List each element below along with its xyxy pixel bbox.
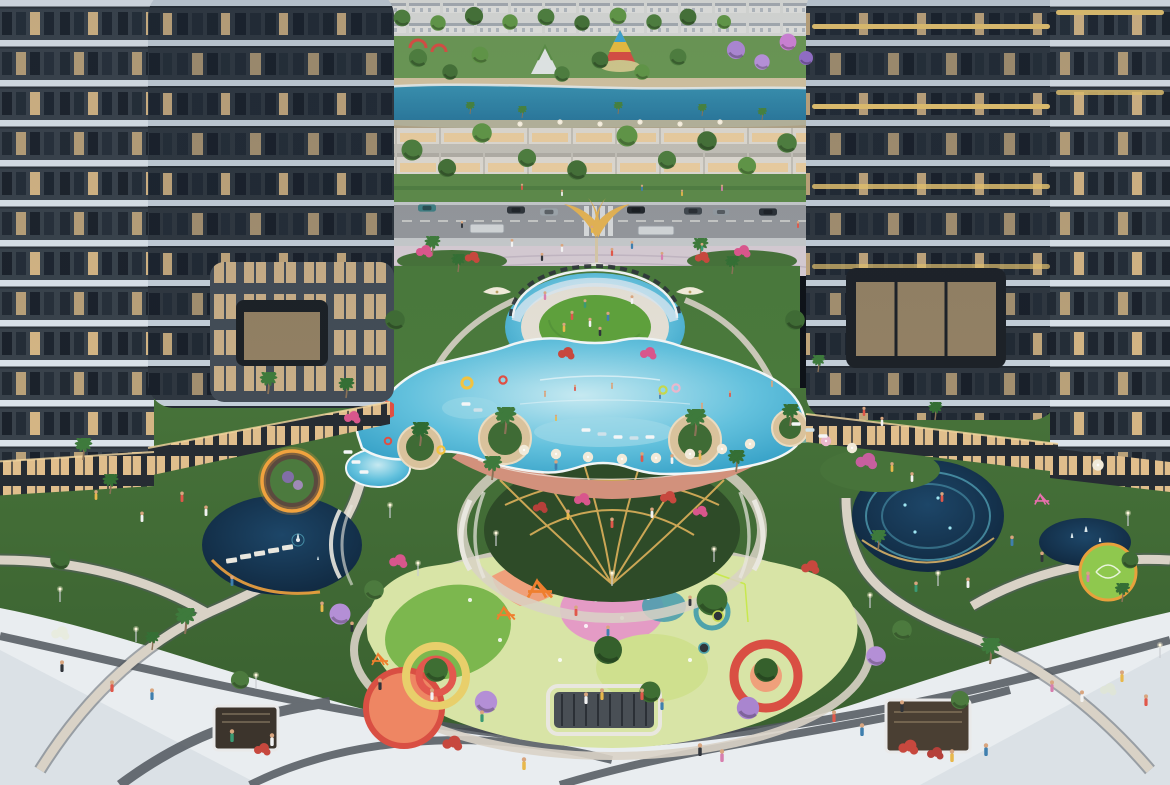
person xyxy=(650,508,654,518)
tree xyxy=(330,604,351,625)
trampoline xyxy=(713,611,723,621)
person xyxy=(320,602,324,612)
tree xyxy=(754,54,769,69)
person xyxy=(611,383,613,389)
person xyxy=(659,393,661,399)
tree xyxy=(592,52,609,69)
pool-lounger xyxy=(352,460,361,464)
aerial-render-residential-complex xyxy=(0,0,1170,785)
tree xyxy=(394,10,411,27)
tree xyxy=(697,585,728,616)
person xyxy=(688,596,692,606)
tree xyxy=(658,151,676,169)
person xyxy=(544,391,546,397)
tree xyxy=(567,160,587,180)
person xyxy=(600,688,604,700)
tree xyxy=(554,66,569,81)
person xyxy=(1086,572,1090,582)
umbrella xyxy=(517,121,522,126)
tree xyxy=(951,691,969,709)
person xyxy=(110,680,114,692)
tree xyxy=(646,14,661,29)
pool-lounger xyxy=(462,402,471,406)
person xyxy=(461,221,463,228)
umbrella xyxy=(583,452,593,462)
person xyxy=(890,462,893,472)
car xyxy=(540,208,558,215)
umbrella xyxy=(717,119,722,124)
dusk-overlay xyxy=(0,0,1170,785)
tree xyxy=(50,550,70,570)
person xyxy=(570,311,573,320)
pool-lounger xyxy=(646,435,655,439)
person xyxy=(554,460,557,470)
umbrella xyxy=(597,121,602,126)
person xyxy=(521,184,523,190)
umbrella xyxy=(717,444,727,454)
person xyxy=(561,244,564,252)
person xyxy=(631,241,634,249)
person xyxy=(631,295,634,304)
person xyxy=(511,239,514,247)
person xyxy=(60,660,64,672)
person xyxy=(180,492,184,502)
person xyxy=(860,723,864,736)
person xyxy=(880,417,883,426)
person xyxy=(900,700,904,712)
tree xyxy=(409,49,427,67)
person xyxy=(721,185,723,191)
car xyxy=(759,208,777,215)
person xyxy=(606,626,610,636)
tree xyxy=(785,310,805,330)
tree xyxy=(472,47,489,64)
tree xyxy=(617,126,638,147)
person xyxy=(701,243,704,251)
pool-lounger xyxy=(598,432,607,436)
person xyxy=(378,678,382,690)
tree xyxy=(738,157,756,175)
car xyxy=(507,206,525,213)
tree xyxy=(475,691,497,713)
pool-lounger xyxy=(360,470,369,474)
person xyxy=(561,190,563,196)
render-canvas xyxy=(0,0,1170,785)
person xyxy=(698,743,702,756)
tree xyxy=(610,8,627,25)
pool-lounger xyxy=(630,436,639,440)
tree xyxy=(472,123,492,143)
person xyxy=(640,688,644,700)
tree xyxy=(727,41,745,59)
person xyxy=(950,749,954,762)
tree xyxy=(538,9,555,26)
person xyxy=(574,606,578,616)
person xyxy=(584,299,587,308)
tree xyxy=(717,15,731,29)
umbrella xyxy=(847,443,857,453)
tree xyxy=(680,9,697,26)
person xyxy=(681,190,683,196)
person xyxy=(562,323,565,332)
umbrella xyxy=(617,454,627,464)
tree xyxy=(430,15,445,30)
person xyxy=(610,518,614,528)
person xyxy=(591,225,594,233)
person xyxy=(230,729,234,742)
person xyxy=(940,492,943,502)
person xyxy=(640,452,643,462)
tree xyxy=(1122,552,1139,569)
person xyxy=(480,710,484,722)
tree xyxy=(465,7,483,25)
umbrella xyxy=(677,121,682,126)
person xyxy=(729,391,731,397)
trampoline xyxy=(699,643,709,653)
tree xyxy=(799,51,813,65)
person xyxy=(606,312,609,321)
tree xyxy=(892,620,912,640)
person xyxy=(566,510,570,520)
person xyxy=(910,472,913,482)
person xyxy=(541,253,544,261)
person xyxy=(701,403,703,409)
person xyxy=(544,291,547,300)
person xyxy=(797,221,799,228)
person xyxy=(230,576,234,586)
tree xyxy=(385,310,405,330)
person xyxy=(204,506,208,516)
tree xyxy=(231,671,249,689)
pool-lounger xyxy=(792,422,801,426)
umbrella xyxy=(745,439,755,449)
person xyxy=(574,385,576,391)
person xyxy=(1144,694,1148,706)
tree xyxy=(670,49,687,66)
person xyxy=(771,381,773,387)
person xyxy=(1080,690,1084,702)
pool-lounger xyxy=(806,428,815,432)
person xyxy=(522,757,526,770)
umbrella xyxy=(519,445,529,455)
person xyxy=(641,185,643,191)
tree xyxy=(438,159,456,177)
tree xyxy=(634,64,649,79)
person xyxy=(661,252,664,260)
person xyxy=(588,318,591,327)
person xyxy=(1010,536,1014,546)
person xyxy=(1120,670,1124,682)
tree xyxy=(754,658,778,682)
person xyxy=(350,622,354,632)
person xyxy=(94,490,97,500)
umbrella xyxy=(1092,459,1103,470)
car xyxy=(684,207,702,214)
person xyxy=(598,327,601,336)
tree xyxy=(737,697,759,719)
person xyxy=(611,248,614,256)
umbrella xyxy=(557,119,562,124)
umbrella xyxy=(551,449,561,459)
person xyxy=(584,692,588,704)
person xyxy=(150,688,154,700)
person xyxy=(1040,552,1044,562)
tree xyxy=(780,34,797,51)
car xyxy=(627,206,645,213)
umbrella xyxy=(651,453,661,463)
umbrella xyxy=(637,119,642,124)
person xyxy=(555,415,557,421)
tree xyxy=(594,636,622,664)
tree xyxy=(502,14,517,29)
tree xyxy=(402,140,423,161)
tree xyxy=(777,133,797,153)
tree xyxy=(697,131,717,151)
car xyxy=(713,209,729,215)
pool-lounger xyxy=(474,408,483,412)
person xyxy=(984,743,988,756)
pool-lounger xyxy=(344,450,353,454)
tree xyxy=(442,64,457,79)
person xyxy=(670,454,673,464)
tree xyxy=(866,646,886,666)
person xyxy=(698,450,701,460)
person xyxy=(270,733,274,746)
pool-lounger xyxy=(614,435,623,439)
person xyxy=(832,710,836,722)
tree xyxy=(518,149,536,167)
person xyxy=(1050,680,1054,692)
pool-lounger xyxy=(819,434,828,438)
person xyxy=(430,688,434,700)
umbrella xyxy=(685,449,695,459)
pool-lounger xyxy=(582,428,591,432)
tree xyxy=(364,580,384,600)
person xyxy=(914,582,918,592)
car xyxy=(418,204,436,211)
tree xyxy=(574,15,589,30)
person xyxy=(660,698,664,710)
tree xyxy=(424,658,448,682)
person xyxy=(720,749,724,762)
person xyxy=(862,407,865,416)
person xyxy=(966,578,970,588)
person xyxy=(140,512,144,522)
